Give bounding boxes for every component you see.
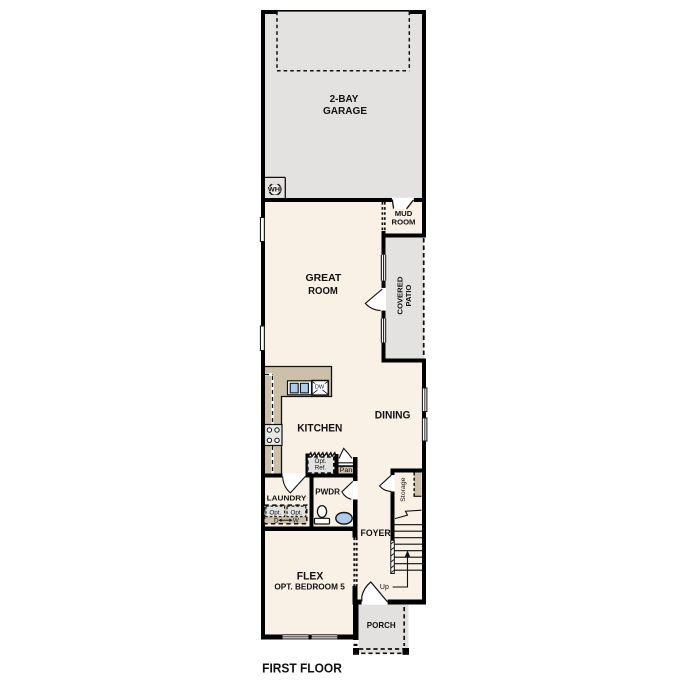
svg-text:Storage: Storage — [400, 477, 407, 502]
svg-text:FOYER: FOYER — [361, 528, 392, 538]
svg-text:DINING: DINING — [375, 410, 411, 422]
svg-text:LAUNDRY: LAUNDRY — [267, 494, 307, 503]
svg-text:FIRST FLOOR: FIRST FLOOR — [262, 660, 342, 675]
svg-text:W: W — [293, 518, 299, 525]
svg-text:Opt.: Opt. — [269, 509, 281, 516]
svg-text:D: D — [274, 518, 279, 525]
svg-text:Opt.: Opt. — [290, 509, 302, 516]
svg-text:PWDR: PWDR — [315, 488, 340, 497]
svg-text:WH: WH — [268, 187, 280, 194]
svg-text:PATIO: PATIO — [404, 285, 413, 307]
svg-text:KITCHEN: KITCHEN — [297, 423, 342, 435]
svg-text:DW: DW — [315, 385, 325, 391]
svg-text:OPT. BEDROOM 5: OPT. BEDROOM 5 — [274, 581, 345, 591]
svg-text:Up: Up — [380, 584, 389, 591]
svg-text:2-BAY: 2-BAY — [330, 93, 359, 105]
svg-text:Ref.: Ref. — [315, 465, 327, 472]
svg-text:PORCH: PORCH — [367, 620, 396, 630]
svg-text:MUD: MUD — [395, 209, 413, 218]
svg-text:ROOM: ROOM — [392, 218, 416, 227]
svg-text:GREAT: GREAT — [306, 272, 342, 284]
svg-text:COVERED: COVERED — [395, 276, 404, 315]
svg-text:GARAGE: GARAGE — [323, 105, 367, 117]
svg-text:Pan: Pan — [340, 467, 353, 474]
svg-text:ROOM: ROOM — [308, 285, 338, 297]
